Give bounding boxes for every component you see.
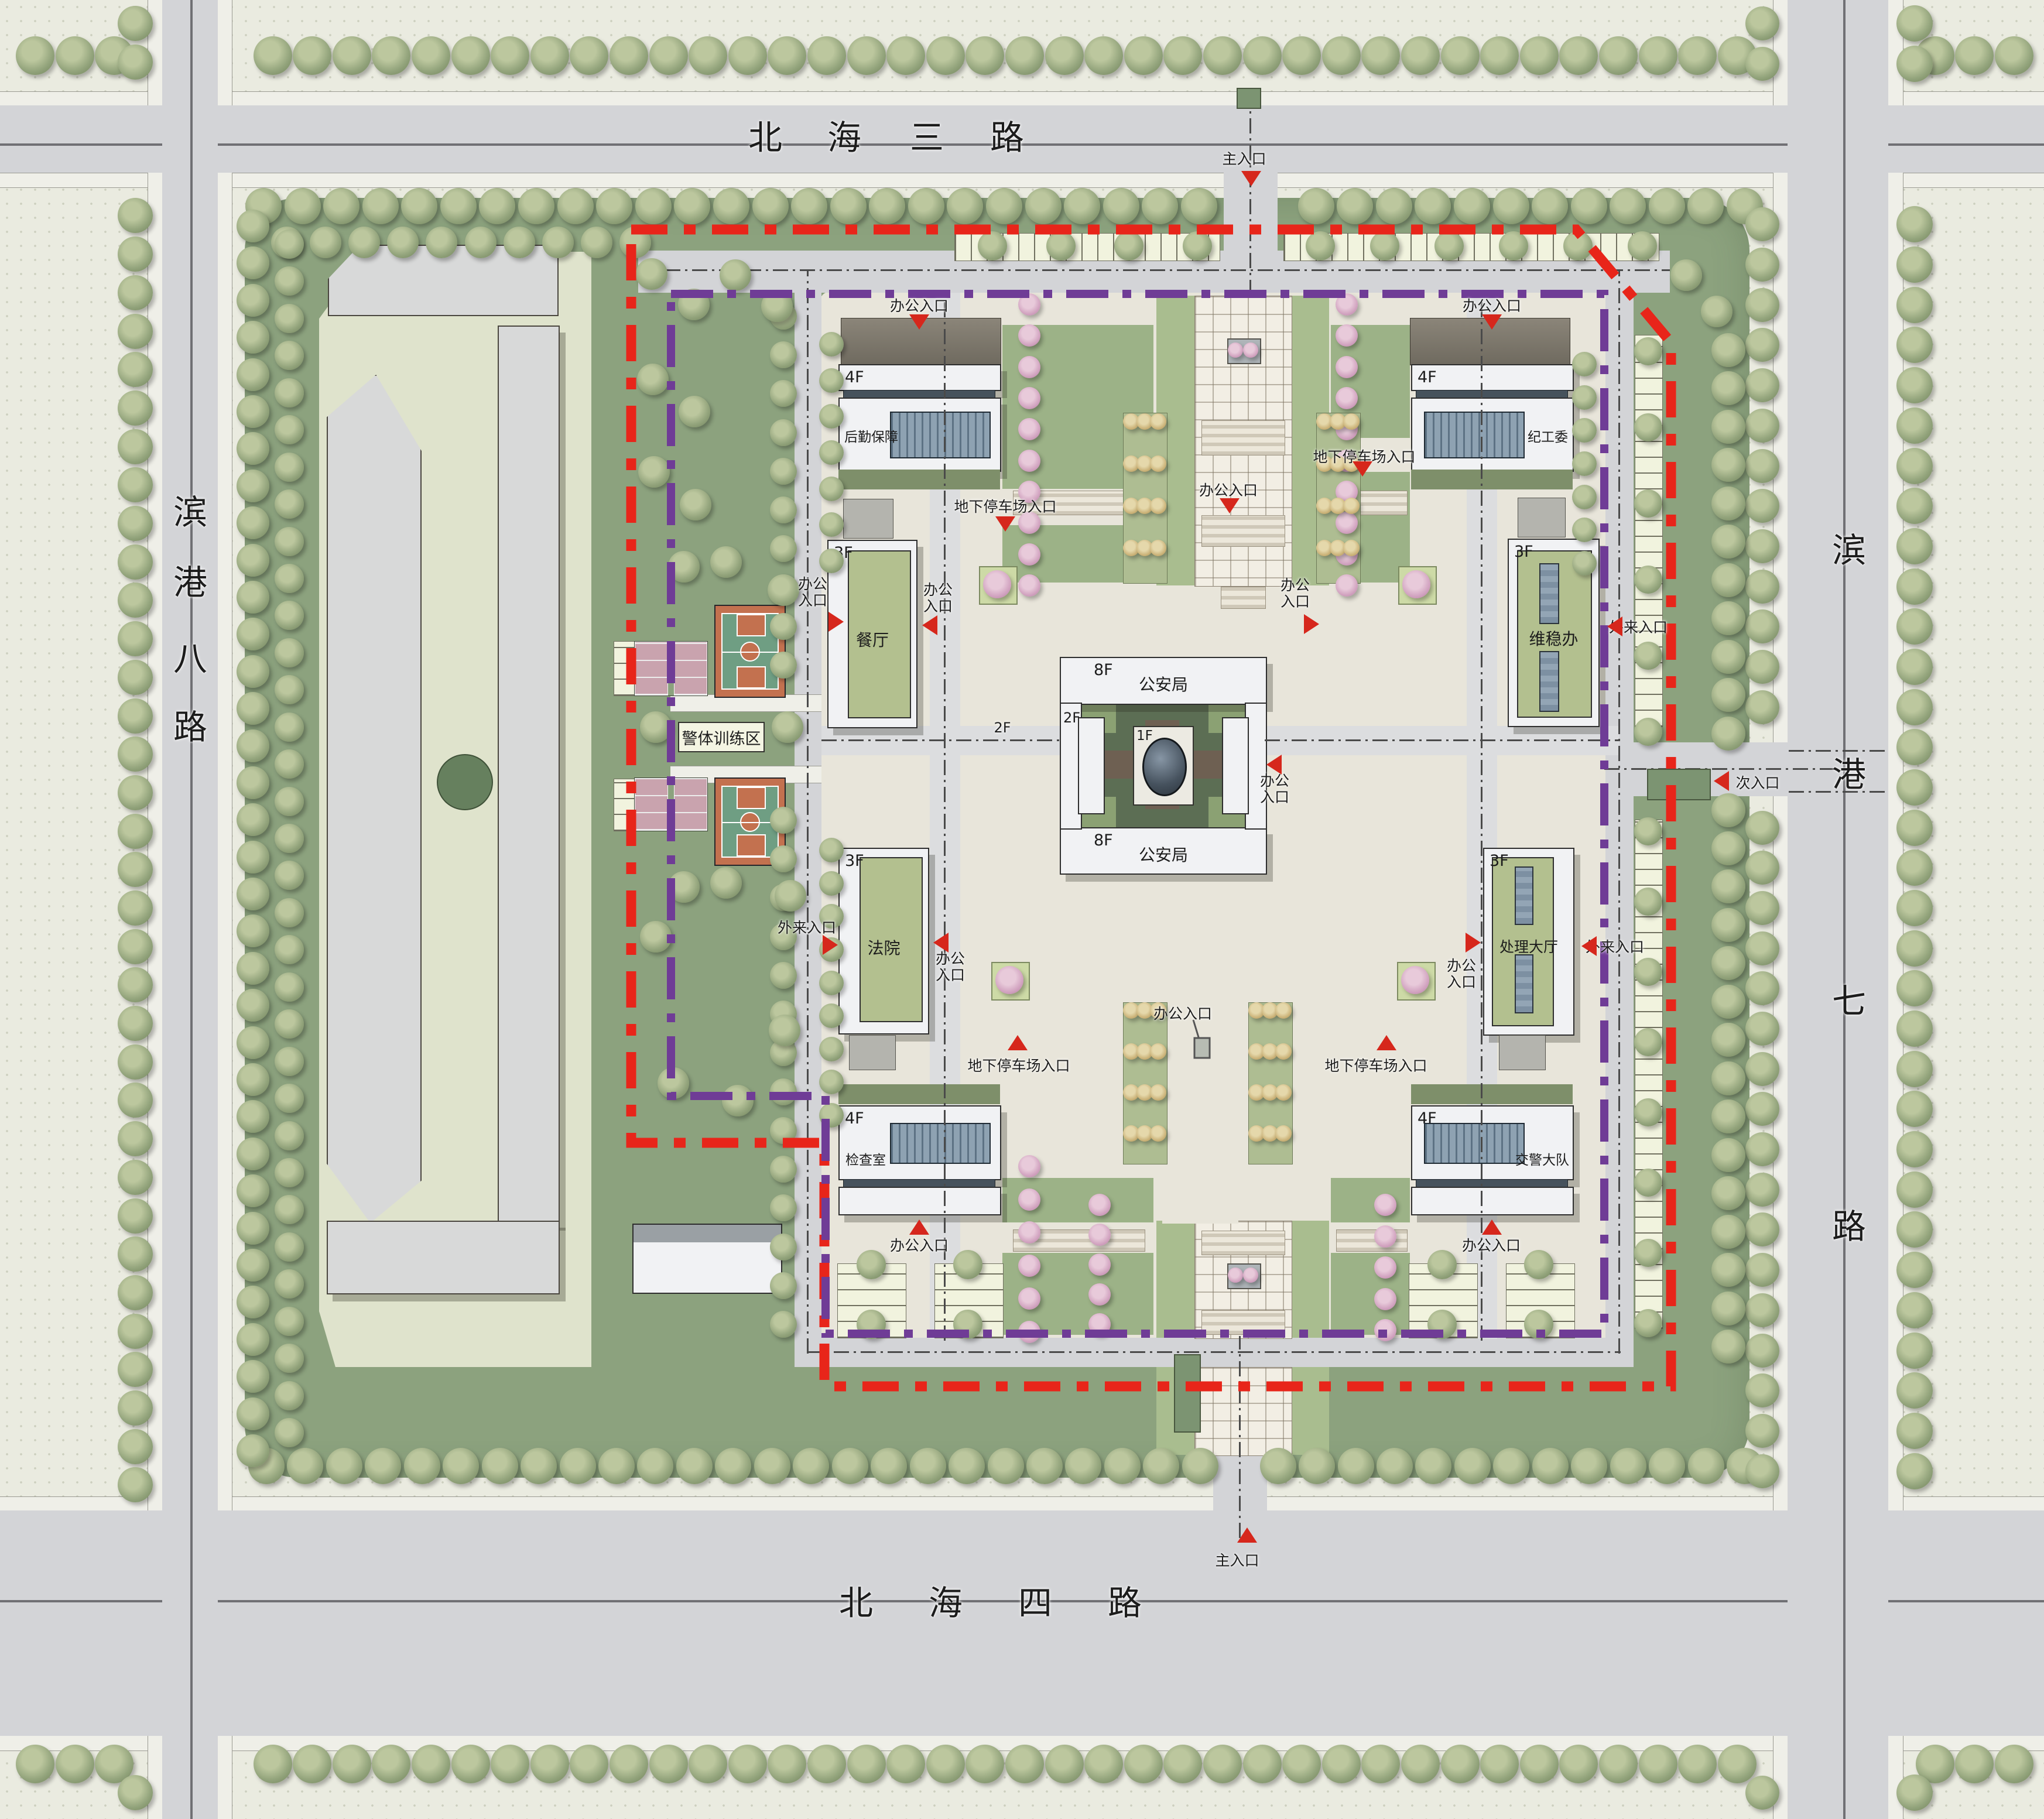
tree — [118, 1275, 153, 1310]
shrub — [1275, 1084, 1292, 1101]
floor-label-2f-annex: 2F — [994, 720, 1011, 736]
tree — [237, 321, 269, 354]
tree — [275, 638, 304, 667]
tree — [710, 867, 742, 899]
tree — [1745, 1414, 1779, 1448]
tree — [1260, 1448, 1296, 1484]
tree — [323, 188, 360, 224]
tree — [1520, 1745, 1559, 1783]
tree — [1571, 188, 1607, 224]
dash-dot-line — [638, 269, 1670, 271]
tree — [275, 341, 304, 370]
tree — [1084, 1745, 1123, 1783]
tree — [542, 227, 574, 258]
tree — [926, 36, 965, 75]
flowering-tree — [1336, 512, 1358, 534]
tree — [1896, 1252, 1933, 1288]
tree — [770, 1078, 797, 1105]
flowering-tree — [995, 966, 1023, 994]
tree — [1104, 1448, 1141, 1484]
tree — [1599, 36, 1638, 75]
tree — [118, 890, 153, 926]
flowering-tree — [1088, 1283, 1111, 1306]
tree — [1711, 487, 1745, 520]
tree — [118, 1429, 153, 1464]
tree — [530, 36, 569, 75]
site-plan-canvas: 警体训练区 4F 后勤保障 4F 纪工委 3F 餐厅 3F — [0, 0, 2044, 1819]
tennis-courts-south — [634, 777, 708, 831]
tree — [1745, 47, 1779, 81]
tree — [118, 929, 153, 964]
tree — [482, 1448, 518, 1484]
tree — [275, 972, 304, 1002]
tree — [118, 544, 153, 580]
tree — [1896, 1332, 1933, 1369]
gatehouse-east — [1647, 769, 1711, 800]
tree — [598, 1448, 635, 1484]
tree — [1745, 1334, 1779, 1368]
tree — [768, 574, 799, 606]
tree — [118, 1314, 153, 1349]
tree — [1896, 448, 1933, 484]
tree — [275, 1344, 304, 1373]
tree — [1896, 327, 1933, 363]
tree — [237, 618, 269, 650]
tree — [1745, 1173, 1779, 1207]
tree — [1243, 36, 1282, 75]
tree — [1711, 333, 1745, 367]
tree — [807, 1745, 846, 1783]
tree — [1005, 1745, 1044, 1783]
tree — [1610, 1448, 1646, 1484]
tree — [237, 766, 269, 799]
tree — [1745, 931, 1779, 965]
tree — [1745, 6, 1779, 40]
tree — [678, 289, 710, 320]
tree — [1563, 231, 1593, 261]
tree — [649, 1745, 688, 1783]
tree — [118, 1121, 153, 1156]
tree — [1415, 1448, 1451, 1484]
flowering-tree — [1018, 1221, 1040, 1244]
tennis-court — [674, 778, 707, 831]
tree — [118, 1775, 153, 1810]
tree — [965, 36, 1004, 75]
tree — [237, 581, 269, 614]
flowering-tree — [1018, 1321, 1040, 1343]
flowering-tree — [1374, 1225, 1396, 1248]
tree — [770, 1156, 797, 1183]
tree — [1532, 1448, 1569, 1484]
tree — [275, 1307, 304, 1336]
tree — [674, 188, 710, 224]
tree — [1896, 568, 1933, 605]
tree — [978, 231, 1007, 261]
tree — [491, 1745, 529, 1783]
shrub — [1343, 455, 1360, 472]
tree — [1572, 551, 1597, 575]
tree — [986, 188, 1022, 224]
tree — [1634, 413, 1662, 441]
tennis-court — [635, 778, 668, 831]
tree — [949, 1448, 985, 1484]
tree — [1634, 888, 1662, 916]
tree — [1711, 717, 1745, 751]
tree — [1415, 188, 1451, 224]
tree — [1401, 1745, 1440, 1783]
tree — [1480, 1745, 1519, 1783]
tree — [1745, 1012, 1779, 1046]
tree — [819, 937, 844, 962]
tree — [926, 1745, 965, 1783]
tree — [1572, 385, 1597, 410]
tree — [1711, 371, 1745, 405]
tree — [1896, 1010, 1933, 1047]
tree — [1634, 718, 1662, 746]
tree — [1711, 793, 1745, 827]
tree — [819, 871, 844, 896]
tree — [237, 1434, 269, 1467]
tree — [275, 675, 304, 704]
tree — [819, 332, 844, 357]
tree — [908, 188, 944, 224]
tree — [118, 1044, 153, 1080]
tree — [596, 188, 632, 224]
tree — [819, 477, 844, 501]
tree — [333, 36, 371, 75]
tree — [1634, 489, 1662, 518]
tree — [770, 1311, 797, 1338]
tree — [237, 395, 269, 428]
tree — [1711, 1023, 1745, 1057]
tree — [1711, 1292, 1745, 1325]
tree — [1718, 1745, 1757, 1783]
tree — [404, 1448, 440, 1484]
tree — [1745, 288, 1779, 322]
tree — [1687, 188, 1724, 224]
dash-dot-line — [807, 1351, 1621, 1353]
tree — [710, 546, 742, 578]
tree — [1634, 642, 1662, 670]
basketball-key-top — [737, 614, 766, 636]
tree — [275, 1121, 304, 1150]
tree — [1711, 985, 1745, 1019]
tree — [237, 1138, 269, 1170]
tree — [752, 188, 789, 224]
tree — [118, 967, 153, 1002]
tree — [293, 1745, 331, 1783]
tree — [770, 1117, 797, 1144]
tree — [1745, 1253, 1779, 1287]
tree — [275, 1195, 304, 1224]
basketball-key-bottom — [737, 666, 766, 688]
tree — [770, 458, 797, 485]
training-area-label: 警体训练区 — [679, 723, 763, 751]
tree — [570, 36, 608, 75]
tree — [640, 921, 672, 953]
tree — [1361, 1745, 1400, 1783]
tree — [770, 923, 797, 950]
tree — [1711, 410, 1745, 444]
tree — [1634, 1098, 1662, 1126]
gatehouse-south — [1174, 1354, 1201, 1433]
tree — [237, 1360, 269, 1393]
tree — [953, 1250, 982, 1279]
basketball-key-top — [737, 787, 766, 809]
tree — [1896, 810, 1933, 846]
flowering-tree — [1018, 450, 1040, 472]
tree — [1124, 36, 1163, 75]
tree — [1701, 296, 1733, 327]
tree — [640, 711, 672, 743]
tree — [1524, 1310, 1553, 1339]
tree — [275, 712, 304, 742]
flowering-tree — [1018, 387, 1040, 409]
tree — [275, 453, 304, 482]
tree — [1493, 188, 1529, 224]
shrub — [1150, 413, 1166, 430]
tree — [1745, 1132, 1779, 1166]
tree — [770, 1234, 797, 1260]
tree — [118, 429, 153, 464]
tree — [1711, 869, 1745, 903]
tree — [1634, 958, 1662, 986]
tree — [118, 314, 153, 349]
tree — [1454, 188, 1490, 224]
tree — [761, 290, 793, 322]
tree — [1896, 970, 1933, 1006]
tree — [807, 36, 846, 75]
tree — [819, 1103, 844, 1128]
flowering-tree — [1336, 356, 1358, 378]
tree — [118, 1467, 153, 1502]
tree — [118, 583, 153, 618]
tree — [118, 814, 153, 849]
flowering-tree — [1018, 574, 1040, 597]
tree — [1045, 1745, 1084, 1783]
flowering-tree — [1401, 966, 1429, 994]
tree — [237, 506, 269, 539]
tree — [1745, 529, 1779, 563]
tree — [365, 1448, 401, 1484]
tree — [1337, 188, 1373, 224]
flowering-tree — [983, 570, 1011, 598]
tree — [857, 1250, 886, 1279]
tree — [1639, 36, 1677, 75]
tree — [1955, 1745, 1994, 1783]
tree — [819, 404, 844, 429]
tree — [237, 358, 269, 391]
tree — [237, 210, 269, 242]
tree — [1572, 485, 1597, 509]
tree — [1995, 36, 2033, 75]
tree — [275, 1381, 304, 1410]
tree — [1896, 206, 1933, 242]
tree — [118, 660, 153, 695]
tree — [1745, 248, 1779, 282]
tree — [1745, 489, 1779, 523]
tree — [770, 1272, 797, 1299]
tree — [754, 1448, 790, 1484]
tree — [237, 655, 269, 688]
tree — [237, 1100, 269, 1133]
tree — [275, 787, 304, 816]
tree — [237, 1026, 269, 1059]
tree — [1896, 930, 1933, 967]
tree — [1532, 188, 1568, 224]
dash-dot-line — [1789, 791, 1888, 793]
tree — [988, 1448, 1024, 1484]
tree — [1745, 328, 1779, 362]
tree — [118, 1160, 153, 1195]
flowering-tree — [1018, 512, 1040, 534]
tree — [1649, 1448, 1685, 1484]
tree — [635, 188, 672, 224]
tree — [819, 1070, 844, 1094]
tree — [1896, 367, 1933, 403]
tree — [1065, 1448, 1101, 1484]
tree — [1896, 1051, 1933, 1087]
shrub — [1150, 1002, 1166, 1019]
tree — [1298, 188, 1334, 224]
tree — [275, 1084, 304, 1113]
tree — [1434, 231, 1464, 261]
tree — [1745, 207, 1779, 241]
flowering-tree — [1018, 1287, 1040, 1310]
tree — [1711, 831, 1745, 865]
tree — [770, 341, 797, 368]
tree — [237, 989, 269, 1022]
tree — [793, 1448, 829, 1484]
tree — [1896, 46, 1933, 82]
tree — [1955, 36, 1994, 75]
tree — [348, 227, 380, 258]
tree — [1559, 36, 1598, 75]
tree — [770, 613, 797, 640]
flowering-tree — [1018, 293, 1040, 316]
tree — [275, 489, 304, 519]
flowering-tree — [1018, 543, 1040, 566]
tree — [237, 914, 269, 947]
tree — [1571, 1448, 1607, 1484]
tree — [1711, 1099, 1745, 1133]
tree — [722, 1085, 754, 1116]
tree — [118, 852, 153, 887]
tree — [1559, 1745, 1598, 1783]
tree — [819, 512, 844, 537]
tree — [1678, 36, 1717, 75]
tree — [237, 1397, 269, 1430]
tree — [1711, 908, 1745, 942]
tree — [275, 1232, 304, 1262]
tree — [237, 1249, 269, 1282]
flowering-tree — [1336, 293, 1358, 316]
tree — [275, 1269, 304, 1299]
tree — [1480, 36, 1519, 75]
training-area-sign: 警体训练区 — [678, 722, 765, 752]
tree — [118, 44, 153, 80]
tree — [1322, 36, 1361, 75]
tree — [275, 824, 304, 853]
flowering-tree — [1088, 1194, 1111, 1216]
tree — [118, 506, 153, 541]
tree — [1711, 1061, 1745, 1095]
tree — [770, 535, 797, 562]
tree — [770, 807, 797, 834]
tree — [372, 1745, 410, 1783]
tree — [1896, 608, 1933, 645]
tree — [1454, 1448, 1491, 1484]
flowering-tree — [1088, 1224, 1111, 1246]
tennis-court — [674, 642, 707, 696]
tree — [1745, 891, 1779, 925]
tree — [1282, 1745, 1321, 1783]
tree — [530, 1745, 569, 1783]
tree — [1678, 1745, 1717, 1783]
tree — [560, 1448, 596, 1484]
shrub — [1343, 413, 1360, 430]
tree — [581, 227, 612, 258]
tree — [275, 266, 304, 296]
tennis-courts-north — [634, 641, 708, 696]
tree — [401, 188, 437, 224]
tree — [1572, 518, 1597, 542]
tree — [118, 6, 153, 41]
tree — [275, 229, 304, 259]
flowering-tree — [1018, 324, 1040, 347]
tree — [387, 227, 419, 258]
tree — [768, 36, 806, 75]
tree — [1896, 5, 1933, 42]
tree — [118, 1083, 153, 1118]
tree — [1634, 1309, 1662, 1337]
tree — [118, 1006, 153, 1041]
tree — [275, 564, 304, 593]
tree — [237, 1212, 269, 1245]
flowering-tree — [1018, 1188, 1040, 1211]
tree — [638, 456, 670, 488]
tree — [770, 845, 797, 872]
flowering-tree — [1018, 356, 1040, 378]
tree — [770, 962, 797, 989]
tree — [518, 188, 554, 224]
tree — [275, 1158, 304, 1187]
tree — [610, 36, 648, 75]
tree — [953, 1310, 982, 1339]
tree — [1896, 1211, 1933, 1248]
tree — [1711, 640, 1745, 674]
tree — [1599, 1745, 1638, 1783]
tree — [1634, 817, 1662, 845]
tree — [679, 396, 710, 427]
tree — [1322, 1745, 1361, 1783]
tree — [56, 1745, 94, 1783]
tree — [1711, 525, 1745, 559]
tree — [1441, 1745, 1480, 1783]
tree — [275, 749, 304, 779]
tree — [1896, 890, 1933, 926]
flowering-tree — [1018, 1255, 1040, 1277]
tree — [237, 246, 269, 279]
tree — [1377, 1448, 1413, 1484]
flowering-tree — [1243, 342, 1258, 358]
tree — [819, 971, 844, 995]
tree — [1896, 1091, 1933, 1127]
tree — [1203, 1745, 1242, 1783]
tree — [689, 1745, 727, 1783]
tree — [1282, 36, 1321, 75]
tree — [310, 227, 341, 258]
